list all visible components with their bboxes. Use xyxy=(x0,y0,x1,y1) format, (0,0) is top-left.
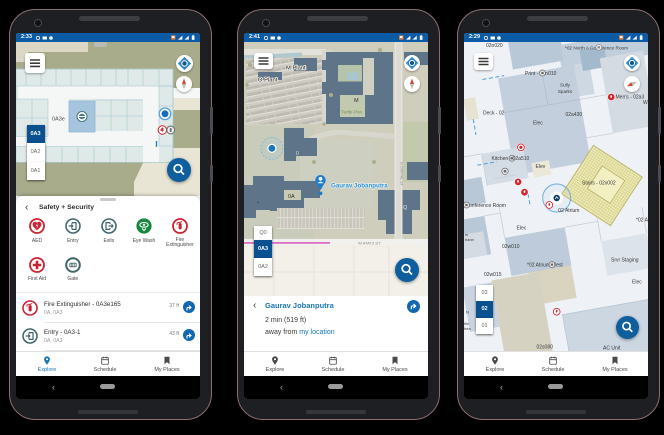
svg-text:hea: hea xyxy=(464,326,471,331)
svg-text:Deck - 02: Deck - 02 xyxy=(483,111,505,117)
svg-text:Sully: Sully xyxy=(560,83,571,88)
svg-text:W: W xyxy=(643,100,648,106)
svg-text:Gaurav Jobanputra: Gaurav Jobanputra xyxy=(331,183,388,190)
svg-text:Elev: Elev xyxy=(536,164,546,170)
svg-text:N: N xyxy=(466,310,469,315)
svg-text:*02 A: *02 A xyxy=(636,218,648,224)
svg-text:*02 Atrium West: *02 Atrium West xyxy=(527,263,563,269)
svg-text:Kitchen - 02a510: Kitchen - 02a510 xyxy=(492,156,530,162)
svg-text:0A3e: 0A3e xyxy=(52,117,65,123)
svg-text:M Plant: M Plant xyxy=(286,66,306,72)
svg-text:Elec: Elec xyxy=(517,226,527,232)
svg-text:N CAPITAL ST: N CAPITAL ST xyxy=(400,162,404,187)
svg-text:Stairs - 02x002: Stairs - 02x002 xyxy=(582,181,616,187)
svg-text:Men's - 02a3: Men's - 02a3 xyxy=(616,95,645,101)
svg-text:M: M xyxy=(354,98,359,104)
svg-text:02w010: 02w010 xyxy=(502,244,520,250)
svg-text:Srvr Staging: Srvr Staging xyxy=(611,258,639,264)
svg-text:02s080: 02s080 xyxy=(537,345,554,351)
svg-text:0A: 0A xyxy=(288,194,295,200)
svg-text:O Plant: O Plant xyxy=(258,78,278,84)
svg-text:​onference Room: ​onference Room xyxy=(469,203,506,209)
svg-text:Elec: Elec xyxy=(632,280,642,286)
svg-text:Sparks: Sparks xyxy=(558,89,573,94)
svg-text:0: 0 xyxy=(296,151,299,157)
svg-text:hann: hann xyxy=(465,237,474,242)
svg-text:02n020: 02n020 xyxy=(486,43,503,49)
svg-text:02w015: 02w015 xyxy=(484,272,502,278)
svg-text:W ATAT2 ST: W ATAT2 ST xyxy=(358,241,381,246)
svg-text:02a430: 02a430 xyxy=(566,112,583,118)
svg-text:02 Atrium: 02 Atrium xyxy=(558,208,579,214)
svg-text:Elec: Elec xyxy=(533,120,543,126)
svg-text:Turtle Pon: Turtle Pon xyxy=(341,110,362,115)
svg-text:Q: Q xyxy=(403,205,408,211)
